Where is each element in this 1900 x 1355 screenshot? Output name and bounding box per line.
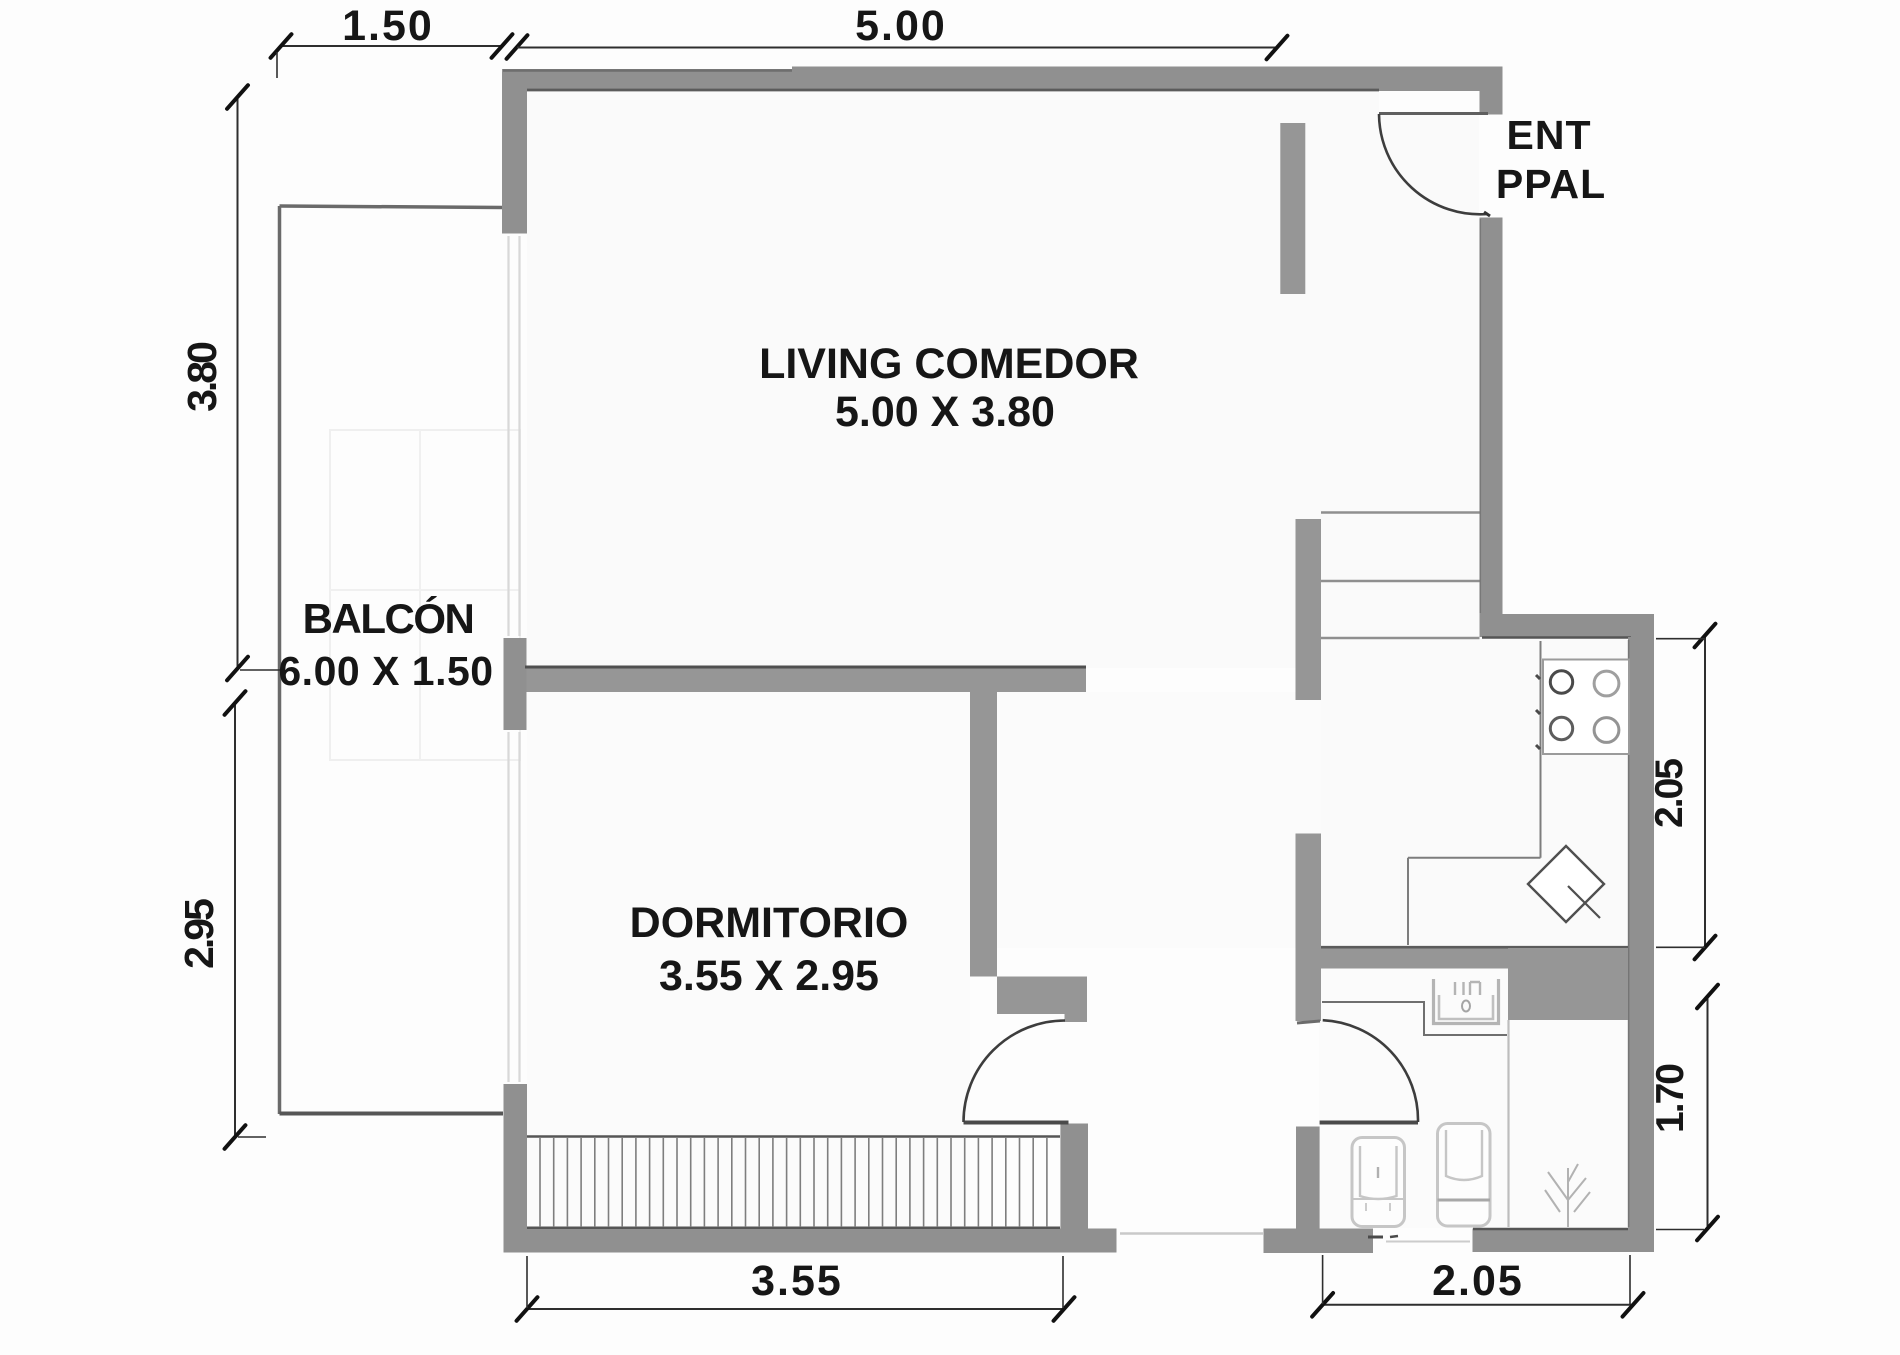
svg-text:3.55 X 2.95: 3.55 X 2.95 (659, 952, 879, 1000)
svg-text:6.00 X 1.50: 6.00 X 1.50 (278, 648, 493, 694)
svg-text:BALCÓN: BALCÓN (303, 594, 474, 642)
svg-text:LIVING COMEDOR: LIVING COMEDOR (759, 340, 1139, 388)
svg-text:PPAL: PPAL (1496, 161, 1606, 207)
svg-text:5.00: 5.00 (855, 2, 947, 50)
svg-text:5.00 X 3.80: 5.00 X 3.80 (835, 388, 1055, 436)
svg-text:2.05: 2.05 (1648, 759, 1691, 828)
svg-text:3.55: 3.55 (751, 1257, 843, 1305)
svg-text:1.70: 1.70 (1649, 1064, 1692, 1133)
svg-text:DORMITORIO: DORMITORIO (630, 899, 909, 947)
svg-text:3.80: 3.80 (179, 342, 225, 412)
svg-text:ENT: ENT (1507, 112, 1592, 158)
svg-text:1.50: 1.50 (342, 2, 434, 50)
svg-text:2.05: 2.05 (1432, 1257, 1524, 1305)
svg-text:2.95: 2.95 (176, 899, 222, 969)
